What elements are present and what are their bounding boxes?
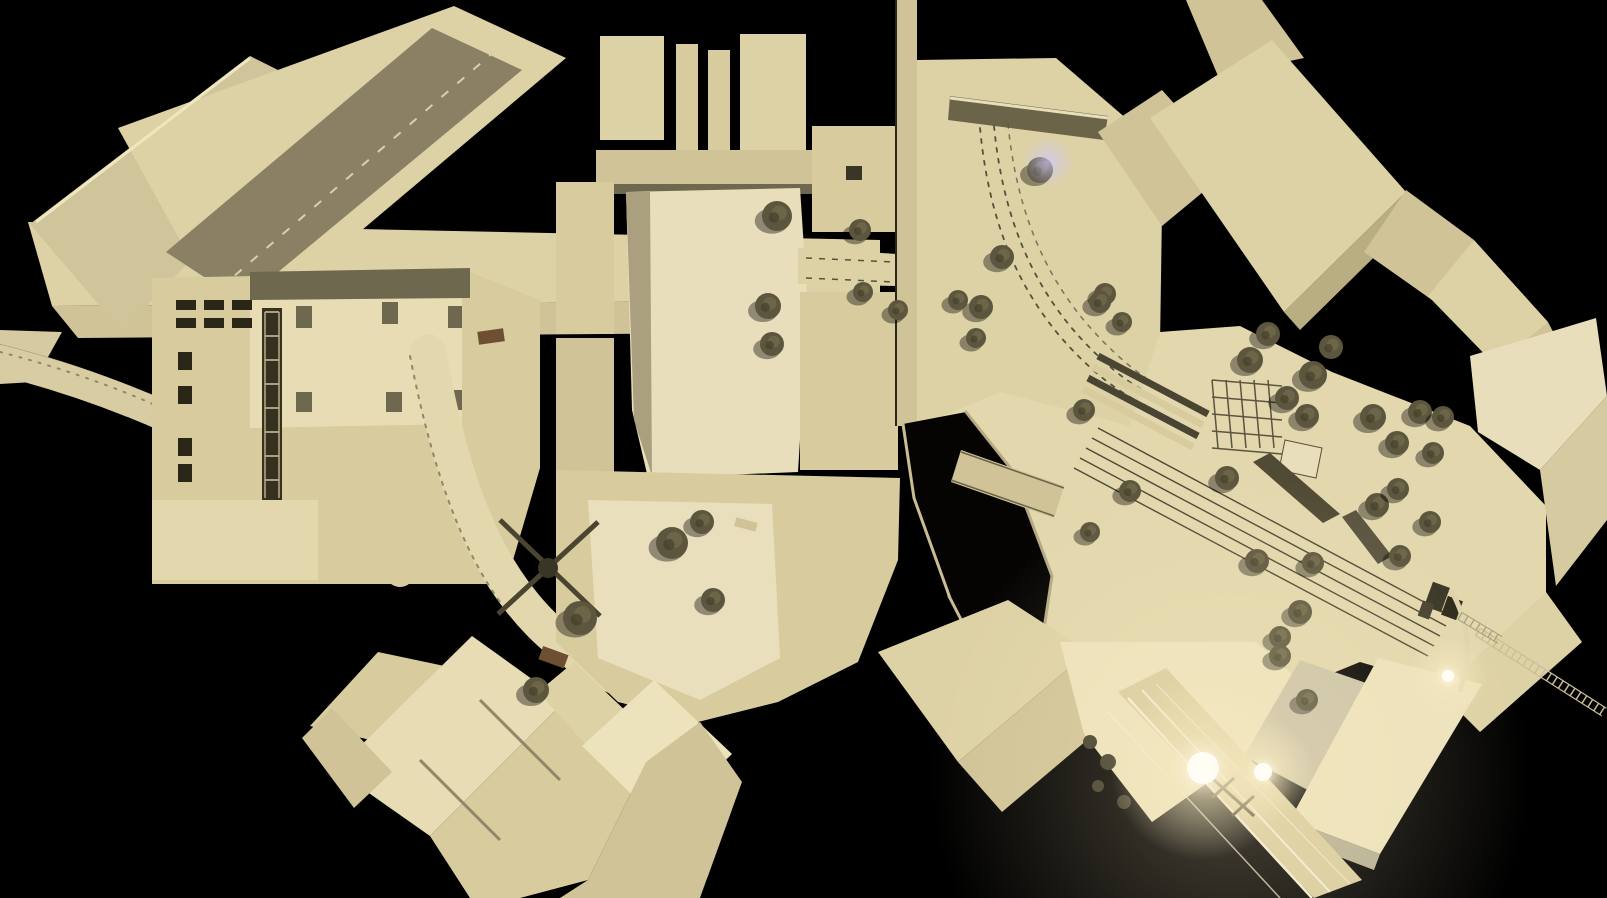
tree-core bbox=[1390, 440, 1398, 448]
tree-core bbox=[1243, 357, 1252, 366]
tree-core bbox=[571, 614, 583, 626]
tree-core bbox=[974, 304, 982, 312]
sun-flare-small-core bbox=[1254, 763, 1272, 781]
tree-core bbox=[1305, 372, 1315, 382]
tree-core bbox=[765, 341, 773, 349]
tree-core bbox=[893, 308, 900, 315]
rail-exit-glow-core bbox=[1442, 670, 1454, 682]
crane-hub bbox=[538, 558, 558, 578]
tower-block-west bbox=[600, 36, 664, 140]
tree-core bbox=[953, 298, 960, 305]
tree-core bbox=[1424, 519, 1432, 527]
tree-core bbox=[1280, 395, 1288, 403]
construction-lower-block bbox=[152, 500, 318, 580]
tree-core bbox=[769, 212, 780, 223]
tree-core bbox=[1370, 502, 1378, 510]
tree-core bbox=[995, 254, 1003, 262]
tree-core bbox=[1392, 486, 1400, 494]
tree-core bbox=[854, 227, 862, 235]
map-render bbox=[0, 0, 1607, 898]
tree-core bbox=[858, 290, 865, 297]
roof-prop bbox=[846, 166, 862, 180]
tree-core bbox=[706, 597, 714, 605]
tree-core bbox=[1366, 414, 1375, 423]
tree-core bbox=[1427, 450, 1435, 458]
tower-base bbox=[596, 150, 842, 188]
tree-core bbox=[695, 519, 703, 527]
plaza-west-strip-1 bbox=[556, 182, 614, 334]
tree-core bbox=[1413, 409, 1421, 417]
plaza-west-strip-2 bbox=[556, 338, 614, 478]
lens-flare-cool bbox=[1022, 136, 1074, 188]
tree-core bbox=[761, 303, 770, 312]
long-wall bbox=[895, 0, 917, 426]
tree-core bbox=[1117, 320, 1124, 327]
tree-core bbox=[1300, 413, 1308, 421]
tree-core bbox=[1437, 414, 1445, 422]
tree-core bbox=[663, 539, 674, 550]
tree-core bbox=[971, 336, 978, 343]
game-map-overview[interactable] bbox=[0, 0, 1607, 898]
courtyard-arcade-shadow bbox=[250, 268, 470, 300]
tree-core bbox=[1078, 407, 1086, 415]
tower-spike-1 bbox=[676, 44, 698, 168]
tree-core bbox=[529, 687, 538, 696]
tree-core bbox=[1324, 344, 1332, 352]
tower-block-east bbox=[740, 34, 806, 154]
tree-core bbox=[1094, 299, 1102, 307]
tree-core bbox=[1261, 331, 1269, 339]
